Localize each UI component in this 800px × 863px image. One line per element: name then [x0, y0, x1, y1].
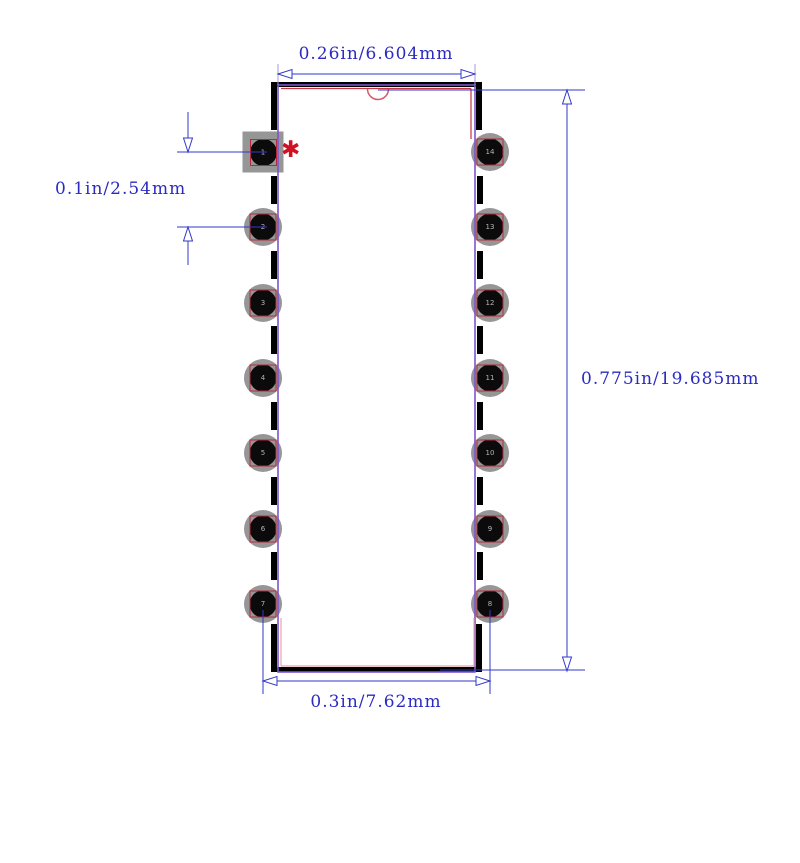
silk-dash: [271, 326, 277, 354]
pad-pin-13[interactable]: 13: [471, 208, 509, 246]
pad-number: 1: [243, 132, 284, 173]
pad-number: 12: [471, 284, 509, 322]
silkscreen-outline: [271, 82, 483, 672]
dimension-label-right: 0.775in/19.685mm: [581, 369, 760, 389]
silk-dash: [477, 176, 483, 204]
silk-dash: [477, 402, 483, 430]
pad-pin-12[interactable]: 12: [471, 284, 509, 322]
silk-corner-tl: [271, 82, 277, 130]
extension-lines: [263, 64, 585, 694]
pad-pin-5[interactable]: 5: [244, 434, 282, 472]
pad-number: 3: [244, 284, 282, 322]
dimension-lines: [177, 70, 572, 686]
dimension-label-left: 0.1in/2.54mm: [55, 179, 175, 199]
silk-dash: [271, 251, 277, 279]
courtyard-outline: [281, 89, 474, 667]
silk-corner-tr: [476, 82, 482, 130]
pad-number: 11: [471, 359, 509, 397]
dimension-label-top: 0.26in/6.604mm: [276, 44, 476, 64]
pad-pin-1[interactable]: 1: [243, 132, 284, 173]
silk-dash: [271, 552, 277, 580]
silk-dash: [477, 477, 483, 505]
pad-number: 2: [244, 208, 282, 246]
pad-number: 4: [244, 359, 282, 397]
pad-number: 5: [244, 434, 282, 472]
silk-side-dashes: [271, 176, 483, 580]
pad-pin-7[interactable]: 7: [244, 585, 282, 623]
silk-dash: [271, 176, 277, 204]
silk-bottom-edge: [271, 667, 481, 672]
silk-corner-br: [476, 624, 482, 672]
silk-top-edge: [271, 82, 481, 87]
silk-corner-bl: [271, 624, 277, 672]
pad-pin-11[interactable]: 11: [471, 359, 509, 397]
pad-number: 7: [244, 585, 282, 623]
dimension-label-bottom: 0.3in/7.62mm: [276, 692, 476, 712]
silk-dash: [271, 402, 277, 430]
footprint-viewer: 1234567141312111098: [0, 0, 800, 863]
silk-dash: [271, 477, 277, 505]
pad-number: 10: [471, 434, 509, 472]
pad-pin-4[interactable]: 4: [244, 359, 282, 397]
pad-number: 8: [471, 585, 509, 623]
pad-pin-3[interactable]: 3: [244, 284, 282, 322]
pad-pin-10[interactable]: 10: [471, 434, 509, 472]
silk-dash: [477, 326, 483, 354]
body-outline: [278, 85, 475, 672]
dimension-overlay: [0, 0, 800, 863]
pad-number: 14: [471, 133, 509, 171]
pin1-notch-arc: [368, 89, 389, 100]
pin1-marker-asterisk: ✱: [281, 139, 300, 162]
pad-number: 9: [471, 510, 509, 548]
pad-pin-9[interactable]: 9: [471, 510, 509, 548]
pad-pin-8[interactable]: 8: [471, 585, 509, 623]
pad-pin-6[interactable]: 6: [244, 510, 282, 548]
silk-dash: [477, 552, 483, 580]
pad-pin-2[interactable]: 2: [244, 208, 282, 246]
pad-number: 6: [244, 510, 282, 548]
silk-dash: [477, 251, 483, 279]
pad-number: 13: [471, 208, 509, 246]
pad-pin-14[interactable]: 14: [471, 133, 509, 171]
